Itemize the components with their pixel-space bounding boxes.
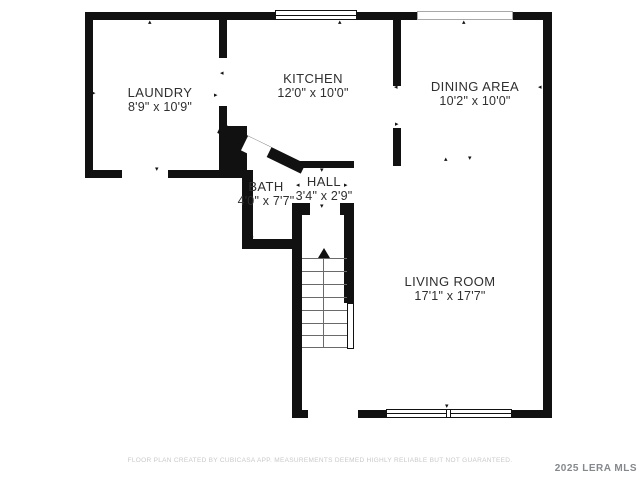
room-dimensions: 3'4" x 2'9" [296,189,353,204]
door-tick-icon: ▴ [148,19,152,26]
room-name: KITCHEN [277,71,348,86]
mls-watermark: 2025 LERA MLS [555,463,637,474]
door-tick-icon: ◂ [394,84,398,91]
stairwell-left-wall [292,203,302,418]
wall-top-mid [357,12,417,20]
room-label-hall: HALL 3'4" x 2'9" [296,174,353,204]
room-label-living: LIVING ROOM 17'1" x 17'7" [404,274,495,304]
room-label-bath: BATH 4'0" x 7'7" [238,179,295,209]
kitchen-dining-wall-upper [393,20,401,86]
room-name: DINING AREA [431,79,519,94]
door-tick-icon: ▾ [445,403,449,410]
room-dimensions: 10'2" x 10'0" [431,94,519,109]
stair-step [302,323,347,324]
laundry-kitchen-wall-upper [219,19,227,58]
stair-step [302,310,347,311]
wall-bottom-mid [358,410,388,418]
window-pane-line [276,15,356,16]
wall-bottom-right [510,410,552,418]
door-tick-icon: ▸ [92,90,96,97]
door-tick-icon: ▾ [250,235,254,242]
door-tick-icon: ▴ [462,19,466,26]
door-tick-icon: ◂ [538,84,542,91]
room-label-kitchen: KITCHEN 12'0" x 10'0" [277,71,348,101]
door-tick-icon: ▸ [395,121,399,128]
wall-right [543,12,552,418]
room-label-laundry: LAUNDRY 8'9" x 10'9" [128,85,193,115]
room-name: LAUNDRY [128,85,193,100]
wall-top-left [85,12,275,20]
stairs-up-arrow-icon [318,248,330,258]
kitchen-dining-wall-lower [393,128,401,166]
stair-step [302,271,347,272]
room-label-dining: DINING AREA 10'2" x 10'0" [431,79,519,109]
floor-plan: ▴ ▸ ▾ ◂ ▸ ▴ ◂ ▸ ▴ ◂ ▴ ▾ ▾ ◂ ▸ ▾ ▾ ▾ LAUN… [0,0,640,480]
disclaimer-text: FLOOR PLAN CREATED BY CUBICASA APP. MEAS… [0,457,640,464]
stair-step [302,335,347,336]
door-tick-icon: ▾ [320,167,324,174]
door-tick-icon: ▴ [338,19,342,26]
stair-railing [347,303,354,349]
door-tick-icon: ▸ [214,92,218,99]
door-tick-icon: ▴ [444,156,448,163]
stair-step [302,297,347,298]
door-tick-icon: ▾ [155,166,159,173]
room-name: LIVING ROOM [404,274,495,289]
laundry-bottom-wall-right [168,170,253,178]
room-dimensions: 12'0" x 10'0" [277,86,348,101]
stair-step [302,347,347,348]
room-name: BATH [238,179,295,194]
room-dimensions: 8'9" x 10'9" [128,100,193,115]
living-room-window [386,409,512,418]
stairwell-right-wall [344,203,354,303]
laundry-bottom-wall-left [85,170,122,178]
stair-step [302,258,347,259]
stair-step [302,284,347,285]
door-tick-icon: ◂ [220,70,224,77]
kitchen-window [275,10,357,20]
window-mullion [446,410,451,417]
room-dimensions: 17'1" x 17'7" [404,289,495,304]
room-name: HALL [296,174,353,189]
room-dimensions: 4'0" x 7'7" [238,194,295,209]
door-tick-icon: ▾ [468,155,472,162]
stair-direction-line [323,258,324,348]
